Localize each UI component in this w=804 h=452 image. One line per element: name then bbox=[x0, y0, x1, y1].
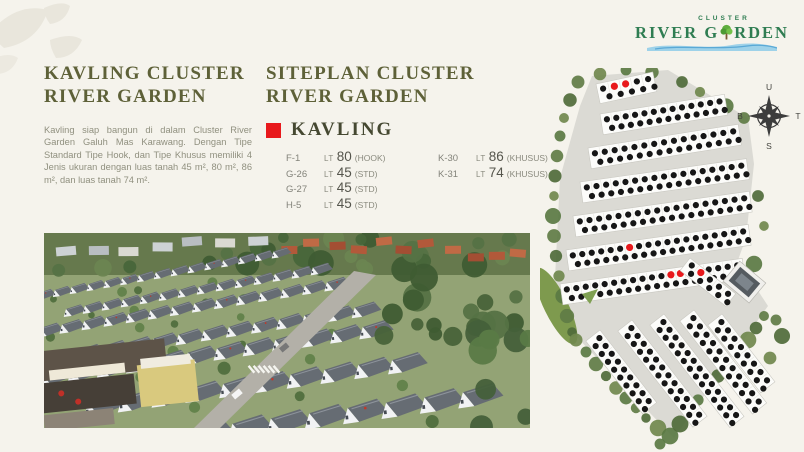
lot-row-h5: H-5 LT 45 (STD) bbox=[286, 196, 438, 212]
compass-label-west: B bbox=[737, 111, 743, 121]
siteplan-title-line2: RIVER GARDEN bbox=[266, 85, 536, 108]
lot-code: H-5 bbox=[286, 200, 324, 211]
left-title: KAVLING CLUSTER RIVER GARDEN bbox=[44, 62, 264, 108]
lot-area: 45 bbox=[337, 165, 352, 180]
description-text: Kavling siap bangun di dalam Cluster Riv… bbox=[44, 124, 252, 186]
lot-type: (STD) bbox=[355, 184, 378, 194]
lot-area: 80 bbox=[337, 149, 352, 164]
lot-area: 86 bbox=[489, 149, 504, 164]
logo-name: RIVER G RDEN bbox=[618, 23, 804, 43]
aerial-photo bbox=[44, 233, 530, 428]
kavling-legend: KAVLING bbox=[266, 119, 393, 141]
lt-label: LT bbox=[324, 185, 334, 194]
lot-row-f1: F-1 LT 80 (HOOK) bbox=[286, 149, 438, 165]
lt-label: LT bbox=[324, 154, 334, 163]
aerial-photo-graphic bbox=[44, 233, 530, 428]
lot-code: K-31 bbox=[438, 169, 476, 180]
lot-code: K-30 bbox=[438, 153, 476, 164]
lot-area: 74 bbox=[489, 165, 504, 180]
lot-area: 45 bbox=[337, 180, 352, 195]
legend-label: KAVLING bbox=[291, 119, 393, 141]
lot-code: G-26 bbox=[286, 169, 324, 180]
left-title-line1: KAVLING CLUSTER bbox=[44, 62, 264, 85]
siteplan-title-line1: SITEPLAN CLUSTER bbox=[266, 62, 536, 85]
lot-row-g26: G-26 LT 45 (STD) bbox=[286, 165, 438, 181]
left-title-line2: RIVER GARDEN bbox=[44, 85, 264, 108]
compass-label-north: U bbox=[766, 82, 772, 92]
logo-name-pre: RIVER G bbox=[635, 23, 719, 43]
lt-label: LT bbox=[476, 170, 486, 179]
brochure-page: KAVLING CLUSTER RIVER GARDEN Kavling sia… bbox=[0, 0, 804, 452]
compass-label-east: T bbox=[795, 111, 800, 121]
lot-column-1: F-1 LT 80 (HOOK) G-26 LT 45 (STD) G-27 L… bbox=[286, 149, 438, 211]
lot-code: F-1 bbox=[286, 153, 324, 164]
logo-cluster-text: CLUSTER bbox=[642, 15, 804, 22]
lot-type: (STD) bbox=[355, 200, 378, 210]
compass-label-south: S bbox=[766, 141, 772, 151]
lt-label: LT bbox=[324, 170, 334, 179]
lot-area: 45 bbox=[337, 196, 352, 211]
siteplan-title: SITEPLAN CLUSTER RIVER GARDEN bbox=[266, 62, 536, 108]
legend-red-swatch bbox=[266, 123, 281, 138]
lot-code: G-27 bbox=[286, 184, 324, 195]
tree-icon bbox=[720, 24, 733, 40]
lot-type: (STD) bbox=[355, 169, 378, 179]
lot-type: (HOOK) bbox=[355, 153, 386, 163]
lt-label: LT bbox=[476, 154, 486, 163]
siteplan-map: UTSB bbox=[540, 68, 804, 452]
lot-row-g27: G-27 LT 45 (STD) bbox=[286, 180, 438, 196]
logo-name-post: RDEN bbox=[734, 23, 789, 43]
cluster-logo: CLUSTER RIVER G RDEN bbox=[618, 15, 804, 51]
lt-label: LT bbox=[324, 201, 334, 210]
